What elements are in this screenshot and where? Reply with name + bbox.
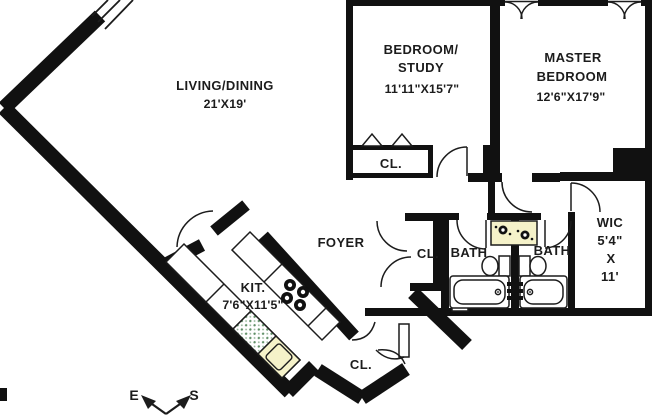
wall-bath-connector bbox=[488, 181, 495, 213]
bathtub-right bbox=[520, 276, 567, 308]
wall-entry-bottom bbox=[362, 369, 406, 398]
double-vanity bbox=[491, 221, 537, 245]
compass-south-label: S bbox=[189, 387, 198, 403]
door-entry-leaf bbox=[399, 324, 409, 357]
label-kitchen: KIT. bbox=[241, 280, 266, 295]
compass-arrow-east bbox=[141, 395, 156, 409]
toilet-left-tank bbox=[499, 256, 510, 276]
door-foyer-closet-upper bbox=[377, 221, 407, 251]
door-wic bbox=[571, 183, 600, 212]
bath-fixtures bbox=[450, 221, 567, 308]
label-bedroom-closet: CL. bbox=[380, 156, 402, 171]
wall-right bbox=[645, 0, 652, 316]
floor-plan-svg: LIVING/DINING 21'X19' BEDROOM/ STUDY 11'… bbox=[0, 0, 652, 416]
closet-hanger-symbol bbox=[362, 134, 382, 146]
label-hall-closet: CL. bbox=[350, 357, 372, 372]
door-foyer-closet-lower bbox=[381, 257, 411, 287]
wall-master-door-stub-right bbox=[532, 173, 560, 182]
wall-bath-bottom bbox=[365, 308, 652, 316]
wall-hall-closet-sw bbox=[288, 366, 314, 392]
wall-bedroom-master-shared bbox=[490, 0, 500, 152]
label-wic-2: 5'4" bbox=[597, 233, 622, 248]
compass-east-label: E bbox=[129, 387, 138, 403]
label-bedroom-study-2: STUDY bbox=[398, 60, 444, 75]
toilet-right-tank bbox=[519, 256, 530, 276]
wall-edge-stub bbox=[0, 388, 7, 401]
label-bedroom-study-dims: 11'11"X15'7" bbox=[385, 82, 460, 96]
wall-bed-door-stub bbox=[483, 145, 500, 180]
door-bedroom-study bbox=[437, 147, 467, 177]
door-master bbox=[502, 182, 532, 212]
floor-plan: LIVING/DINING 21'X19' BEDROOM/ STUDY 11'… bbox=[0, 0, 652, 416]
label-wic-3: X bbox=[606, 251, 615, 266]
compass: E S bbox=[129, 387, 198, 414]
label-master-dims: 12'6"X17'9" bbox=[537, 90, 606, 104]
wall-wic-left bbox=[568, 212, 575, 310]
label-bath-right: BATH bbox=[534, 243, 571, 258]
label-foyer-closet: CL. bbox=[417, 246, 439, 261]
wall-upper-left-diagonal bbox=[4, 16, 100, 108]
toilet-right-bowl bbox=[530, 257, 546, 276]
wall-foyer-closet-bottom bbox=[410, 283, 441, 291]
bathtub-left bbox=[450, 276, 509, 308]
wall-hall-top bbox=[560, 172, 645, 181]
label-wic-4: 11' bbox=[601, 269, 619, 284]
label-bedroom-study-1: BEDROOM/ bbox=[384, 42, 459, 57]
label-master-2: BEDROOM bbox=[537, 69, 608, 84]
wall-top-a bbox=[348, 0, 505, 6]
wall-top-b bbox=[538, 0, 608, 6]
label-living-dims: 21'X19' bbox=[204, 97, 247, 111]
label-master-1: MASTER bbox=[544, 50, 602, 65]
wall-bath-left bbox=[441, 213, 449, 313]
label-wic-1: WIC bbox=[597, 215, 624, 230]
label-foyer: FOYER bbox=[318, 235, 365, 250]
label-living: LIVING/DINING bbox=[176, 78, 274, 93]
wall-bath-top-1 bbox=[449, 213, 459, 220]
window-master-2 bbox=[608, 2, 641, 20]
window-master-1 bbox=[505, 2, 538, 20]
kitchen-door-leaf bbox=[214, 205, 246, 231]
closet-hanger-symbol bbox=[392, 134, 412, 146]
wall-entry-left bbox=[318, 370, 362, 398]
label-bath-left: BATH bbox=[451, 245, 488, 260]
label-kitchen-dims: 7'6"X11'5" bbox=[222, 298, 283, 312]
